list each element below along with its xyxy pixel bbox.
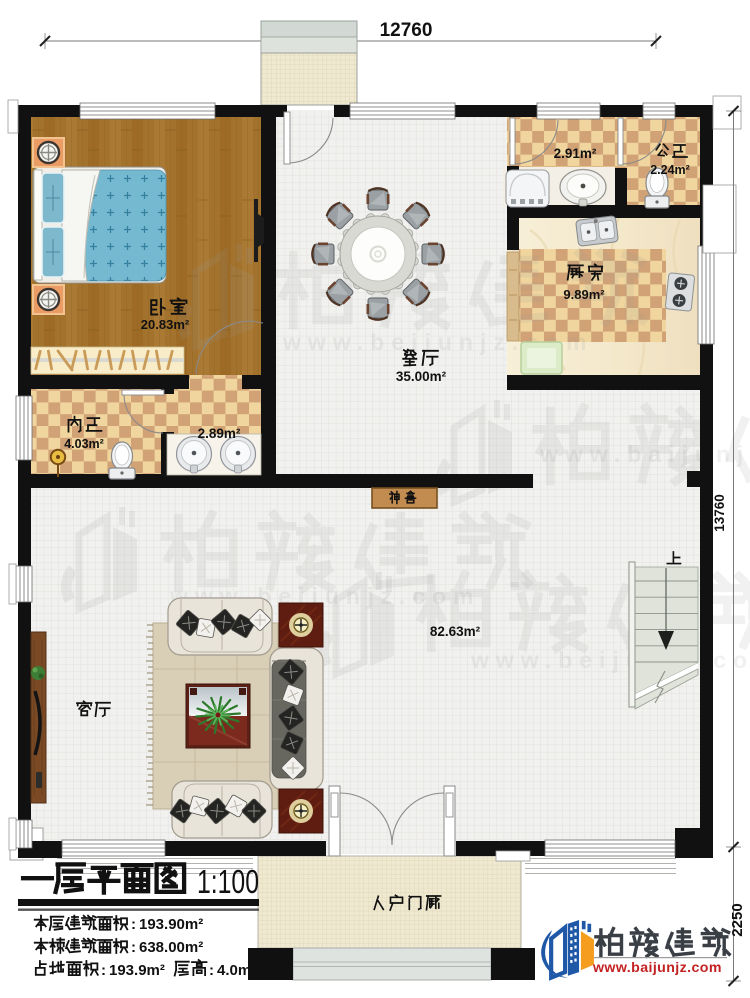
svg-text:193.9m²: 193.9m² [109,962,165,979]
svg-text::: : [209,962,214,979]
svg-text:12760: 12760 [380,20,433,41]
svg-text:82.63m²: 82.63m² [430,624,481,639]
svg-text:www.baijunjz.com: www.baijunjz.com [592,960,722,976]
svg-text:193.90m²: 193.90m² [139,916,203,933]
svg-text:4.03m²: 4.03m² [64,437,104,451]
svg-text:13760: 13760 [712,494,727,532]
svg-text:20.83m²: 20.83m² [141,317,190,332]
svg-text::: : [101,962,106,979]
svg-text:2250: 2250 [729,903,746,936]
svg-text:35.00m²: 35.00m² [396,369,447,384]
svg-text:4.0m: 4.0m [217,962,251,979]
svg-text:638.00m²: 638.00m² [139,939,203,956]
svg-text::: : [131,939,136,956]
svg-text:2.24m²: 2.24m² [650,163,690,177]
svg-text:www.baijunjz.com: www.baijunjz.com [539,441,750,467]
svg-text:1:100: 1:100 [197,863,259,900]
svg-text::: : [131,916,136,933]
svg-text:2.91m²: 2.91m² [554,146,597,161]
svg-text:9.89m²: 9.89m² [563,287,605,302]
svg-text:2.89m²: 2.89m² [198,426,241,441]
